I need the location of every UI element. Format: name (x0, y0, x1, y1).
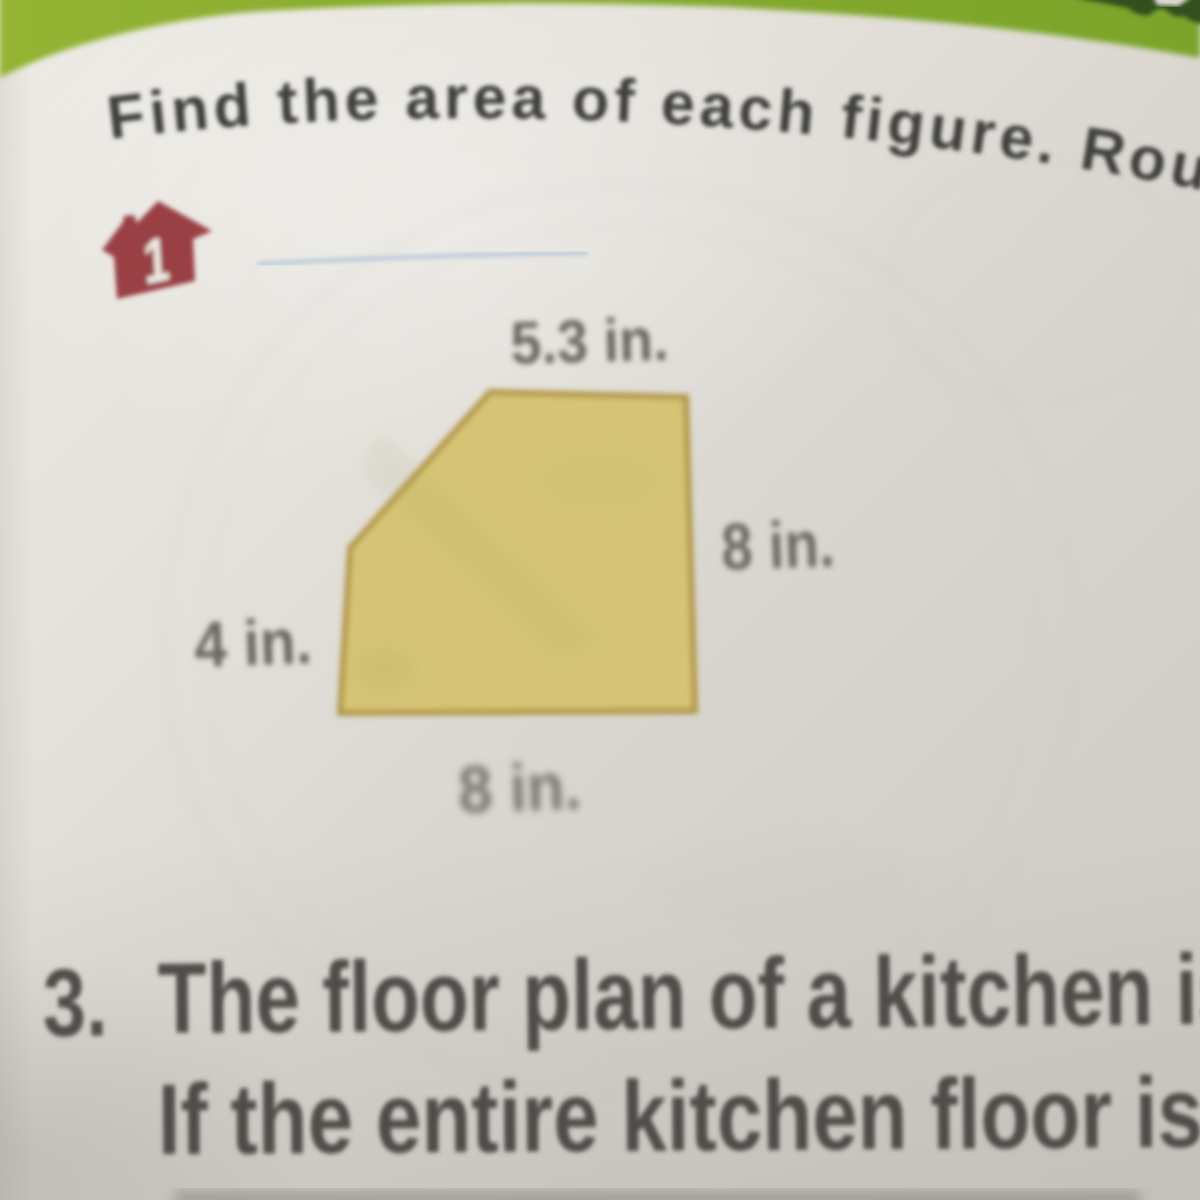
svg-text:If the entire kitchen floor is: If the entire kitchen floor is (157, 1057, 1200, 1176)
svg-text:8 in.: 8 in. (457, 748, 583, 827)
svg-text:4 in.: 4 in. (193, 606, 313, 682)
svg-text:5.3 in.: 5.3 in. (510, 307, 670, 377)
svg-text:3.: 3. (42, 949, 108, 1057)
svg-text:The floor plan of a kitchen is: The floor plan of a kitchen is (157, 934, 1200, 1055)
svg-text:8 in.: 8 in. (720, 507, 836, 585)
